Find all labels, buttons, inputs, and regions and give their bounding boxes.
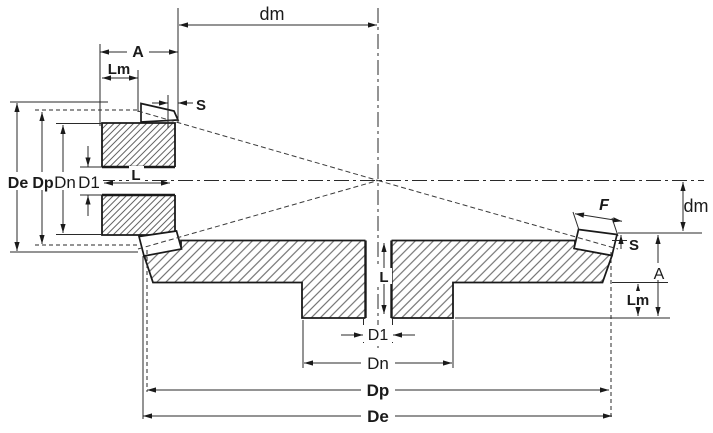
label-de-bottom: De [367, 407, 389, 426]
label-l-gear: L [379, 269, 388, 286]
label-f: F [599, 197, 610, 214]
pinion-hub-lower [102, 195, 175, 235]
label-d1-bottom: D1 [368, 327, 389, 344]
label-dn-left: Dn [54, 173, 76, 192]
label-lm-top: Lm [108, 61, 131, 78]
drawing-canvas: dm A Lm S De Dp Dn D1 L F S dm A Lm L D1… [0, 0, 713, 433]
label-s-right: S [629, 237, 639, 254]
label-dm-top: dm [259, 4, 284, 24]
label-d1-left: D1 [78, 173, 100, 192]
label-dn-bottom: Dn [367, 354, 389, 373]
label-dp-bottom: Dp [367, 381, 390, 400]
label-a-top: A [132, 44, 144, 61]
label-dm-right: dm [683, 196, 708, 216]
label-lm-right: Lm [627, 292, 650, 309]
label-de-left: De [8, 175, 29, 192]
bevel-gear-dimension-drawing: dm A Lm S De Dp Dn D1 L F S dm A Lm L D1… [0, 0, 713, 433]
label-s-top: S [196, 97, 206, 114]
label-dp-left: Dp [32, 175, 54, 192]
pinion-top-tooth [141, 104, 178, 123]
pinion-hub-upper [102, 123, 175, 167]
label-a-right: A [654, 266, 665, 283]
label-l-pinion: L [131, 167, 140, 184]
